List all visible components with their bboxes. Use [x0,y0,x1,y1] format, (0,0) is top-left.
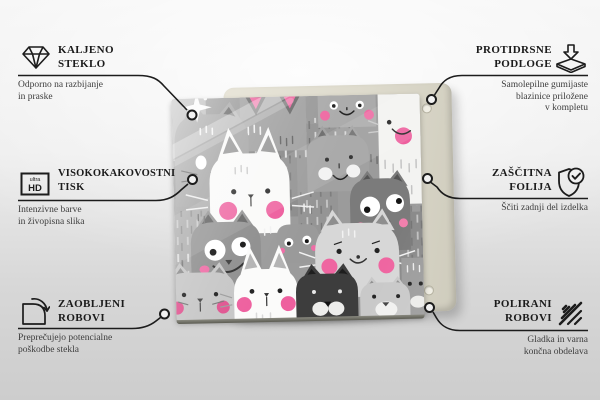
callout-title-line: TISK [58,181,188,195]
callout-title-line: ZAŠČITNA [422,166,552,180]
subtitle-line: Ščiti zadnji del izdelka [438,203,588,215]
subtitle-line: v kompletu [448,103,588,115]
callout-title-line: VISOKOKAKOVOSTNI [58,167,188,181]
svg-text:HD: HD [28,183,42,194]
callout-title-line: ROBOVI [58,311,178,325]
callout-rounded-edges: ZAOBLJENI ROBOVI [58,297,178,325]
callout-title-line: FOLIJA [422,180,552,194]
callout-title-line: PODLOGE [422,57,552,71]
callout-high-quality-print-subtitle: Intenzivne barve in živopisna slika [18,205,158,228]
callout-protective-film-subtitle: Ščiti zadnji del izdelka [438,203,588,215]
callout-polished-edges-subtitle: Gladka in varna končna obdelava [448,335,588,358]
subtitle-line: in praske [18,92,158,104]
anti-slip-pad-icon [554,44,588,73]
callout-rounded-edges-subtitle: Preprečujejo potencialne poškodbe stekla [18,333,168,356]
callout-high-quality-print: VISOKOKAKOVOSTNI TISK [58,167,188,195]
callout-anti-slip-pads-subtitle: Samolepilne gumijaste blazinice priložen… [448,80,588,115]
polished-edge-icon [552,295,584,327]
subtitle-line: Gladka in varna [448,335,588,347]
shield-check-icon [556,166,586,198]
subtitle-line: Intenzivne barve [18,205,158,217]
subtitle-line: končna obdelava [448,347,588,359]
callout-title-line: POLIRANI [432,297,552,311]
callout-tempered-glass: KALJENO STEKLO [58,43,178,71]
subtitle-line: blazinice priložene [448,92,588,104]
callout-title-line: KALJENO [58,43,178,57]
subtitle-line: Odporno na razbijanje [18,80,158,92]
product-infographic: KALJENO STEKLO Odporno na razbijanje in … [0,0,600,400]
diamond-icon [20,45,52,70]
callout-tempered-glass-subtitle: Odporno na razbijanje in praske [18,80,158,103]
rounded-corner-icon [20,297,50,327]
callout-title-line: ROBOVI [432,311,552,325]
callout-title-line: ZAOBLJENI [58,297,178,311]
subtitle-line: Preprečujejo potencialne [18,333,168,345]
callout-protective-film: ZAŠČITNA FOLIJA [422,166,552,194]
callout-anti-slip-pads: PROTIDRSNE PODLOGE [422,43,552,71]
callout-title-line: PROTIDRSNE [422,43,552,57]
subtitle-line: in živopisna slika [18,217,158,229]
ultra-hd-icon: ultra HD [20,172,50,196]
subtitle-line: poškodbe stekla [18,345,168,357]
callout-title-line: STEKLO [58,57,178,71]
subtitle-line: Samolepilne gumijaste [448,80,588,92]
callout-polished-edges: POLIRANI ROBOVI [432,297,552,325]
